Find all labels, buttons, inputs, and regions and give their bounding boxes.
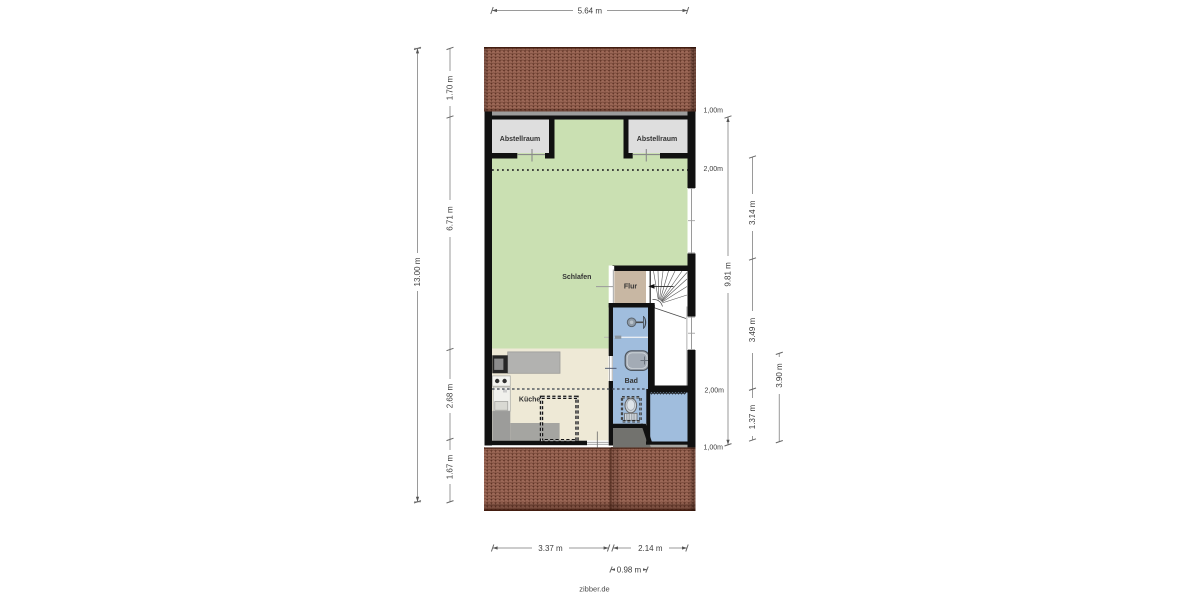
svg-text:13.00 m: 13.00 m [413, 257, 422, 286]
svg-text:3.90 m: 3.90 m [775, 363, 784, 388]
svg-text:1.37 m: 1.37 m [748, 404, 757, 429]
svg-text:Abstellraum: Abstellraum [500, 136, 540, 143]
svg-text:9.81 m: 9.81 m [724, 262, 733, 287]
svg-text:2.14 m: 2.14 m [638, 544, 663, 553]
svg-text:1.70 m: 1.70 m [446, 75, 455, 100]
svg-text:zibber.de: zibber.de [579, 585, 609, 594]
svg-text:2.68 m: 2.68 m [446, 383, 455, 408]
svg-text:0.98 m: 0.98 m [617, 566, 642, 575]
svg-text:1,00m: 1,00m [704, 108, 724, 115]
svg-text:2,00m: 2,00m [705, 388, 725, 395]
svg-text:3.49 m: 3.49 m [748, 317, 757, 342]
svg-text:1,00m: 1,00m [704, 444, 724, 451]
svg-text:5.64 m: 5.64 m [578, 7, 603, 16]
svg-text:Küche: Küche [519, 397, 541, 404]
svg-text:Schlafen: Schlafen [562, 274, 591, 281]
svg-text:3.14 m: 3.14 m [748, 200, 757, 225]
svg-text:Bad: Bad [625, 378, 638, 385]
svg-text:1.67 m: 1.67 m [446, 454, 455, 479]
svg-text:Abstellraum: Abstellraum [637, 136, 677, 143]
svg-text:6.71 m: 6.71 m [446, 206, 455, 231]
svg-text:Flur: Flur [624, 284, 637, 291]
svg-text:3.37 m: 3.37 m [538, 544, 563, 553]
svg-text:2,00m: 2,00m [704, 166, 724, 173]
